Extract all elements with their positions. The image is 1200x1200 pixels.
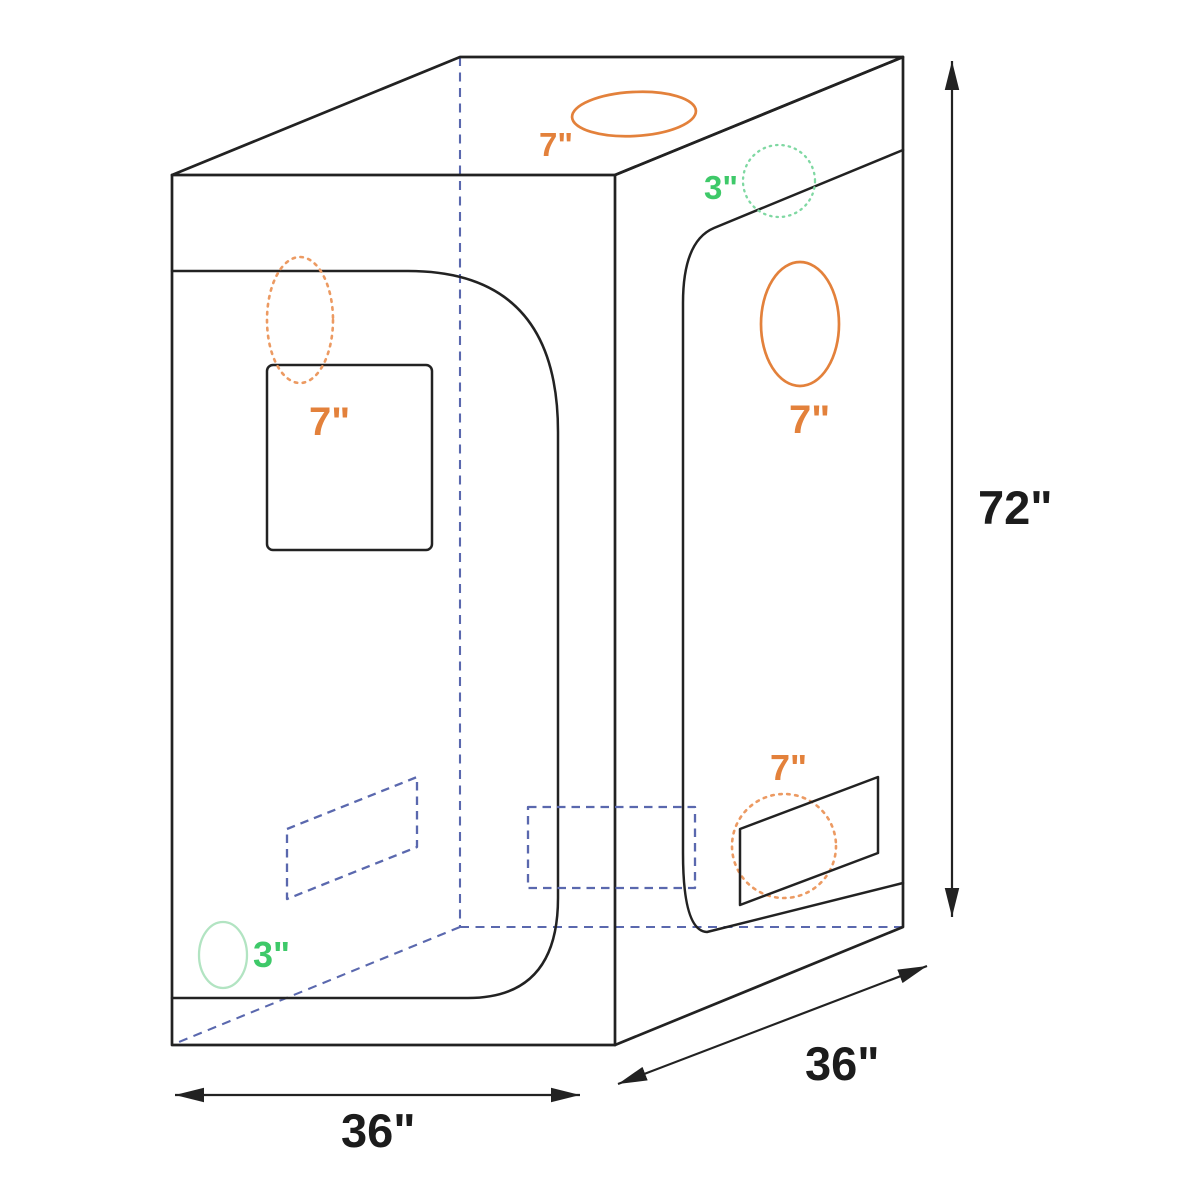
- top-duct-label: 7": [539, 126, 573, 163]
- bottom-left-vent-port: [199, 922, 247, 988]
- front-bottom-vent-outline: [287, 777, 417, 899]
- width-dimension-label: 36": [341, 1104, 416, 1157]
- corner-vent-outline: [528, 807, 695, 888]
- height-dimension-label: 72": [978, 481, 1053, 534]
- side-duct-port: [761, 262, 839, 386]
- depth-dimension-label: 36": [805, 1037, 880, 1090]
- side-door-seam: [683, 150, 903, 932]
- top-side-vent-label: 3": [704, 169, 738, 206]
- tent-top-face: [172, 57, 903, 175]
- front-door-seam: [172, 271, 558, 998]
- bottom-left-vent-label: 3": [253, 934, 290, 975]
- rear-duct-label: 7": [770, 747, 807, 788]
- front-duct-label: 7": [309, 400, 350, 444]
- hidden-bottom-left-edge: [174, 927, 460, 1044]
- top-duct-port: [571, 89, 697, 139]
- grow-tent-diagram-page: 7" 7" 7" 7" 3" 3" 72" 36" 36": [0, 0, 1200, 1200]
- top-side-vent-port: [743, 145, 815, 217]
- front-window: [267, 365, 432, 550]
- tent-front-face: [172, 175, 615, 1045]
- side-duct-label: 7": [789, 398, 830, 442]
- rear-duct-port: [732, 794, 836, 898]
- grow-tent-diagram: 7" 7" 7" 7" 3" 3" 72" 36" 36": [0, 0, 1200, 1200]
- side-bottom-vent-flap: [740, 777, 878, 905]
